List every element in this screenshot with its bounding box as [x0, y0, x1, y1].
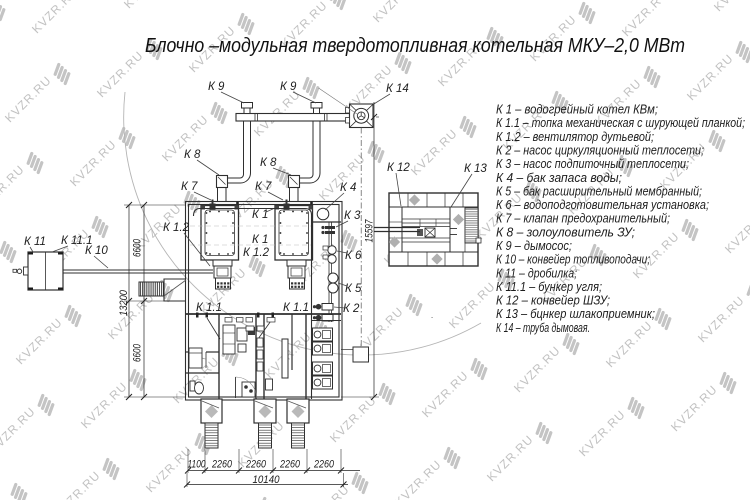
- svg-text:К 10: К 10: [85, 245, 108, 257]
- svg-text:К 13: К 13: [464, 163, 487, 175]
- svg-text:К 1.2: К 1.2: [243, 247, 270, 259]
- svg-text:К 1.1: К 1.1: [283, 302, 309, 314]
- svg-text:10140: 10140: [253, 474, 281, 486]
- svg-text:К 2 – насос циркуляционный те: К 2 – насос циркуляционный теплосети;: [496, 143, 704, 157]
- svg-text:К 8: К 8: [260, 157, 277, 169]
- svg-text:К 9: К 9: [280, 81, 297, 93]
- svg-text:К 11: К 11: [24, 236, 46, 248]
- svg-text:К 5: К 5: [345, 283, 362, 295]
- svg-text:6600: 6600: [132, 343, 144, 362]
- svg-text:К 12: К 12: [387, 162, 410, 174]
- svg-text:К 10 – конвейер топливоподачи: К 10 – конвейер топливоподачи;: [496, 253, 650, 267]
- svg-text:К 1: К 1: [252, 234, 268, 246]
- svg-text:К 6: К 6: [345, 250, 362, 262]
- svg-text:6600: 6600: [132, 238, 144, 257]
- svg-text:К 4 – бак запаса воды;: К 4 – бак запаса воды;: [496, 171, 622, 185]
- svg-text:К 12 – конвейер ШЗУ;: К 12 – конвейер ШЗУ;: [496, 294, 610, 308]
- svg-text:1100: 1100: [188, 459, 207, 471]
- svg-text:К 9 – дымосос;: К 9 – дымосос;: [496, 239, 572, 253]
- svg-text:К 7: К 7: [181, 181, 198, 193]
- svg-text:К 1.1: К 1.1: [196, 302, 222, 314]
- svg-text:2260: 2260: [279, 459, 301, 471]
- svg-text:13200: 13200: [118, 289, 130, 316]
- svg-text:2260: 2260: [245, 459, 267, 471]
- svg-text:К 1: К 1: [252, 209, 268, 221]
- svg-text:К 8: К 8: [184, 149, 201, 161]
- svg-text:К 1.2: К 1.2: [163, 222, 190, 234]
- svg-text:К 3: К 3: [344, 210, 361, 222]
- svg-text:К 1.2 – вентилятор дутьевой;: К 1.2 – вентилятор дутьевой;: [496, 130, 654, 144]
- svg-text:К 3 – насос подпиточный тепло: К 3 – насос подпиточный теплосети;: [496, 157, 689, 171]
- svg-text:15597: 15597: [364, 219, 376, 243]
- svg-text:2260: 2260: [313, 459, 335, 471]
- svg-text:К 1 – водогрейный котел КВм;: К 1 – водогрейный котел КВм;: [496, 103, 658, 117]
- svg-text:К 7 – клапан предохранительны: К 7 – клапан предохранительный;: [496, 212, 670, 226]
- svg-text:2260: 2260: [211, 459, 233, 471]
- svg-text:Блочно –модульная твердотоплив: Блочно –модульная твердотопливная котель…: [145, 34, 685, 57]
- svg-text:К 1.1 – топка механическая с: К 1.1 – топка механическая с шурующей пл…: [496, 116, 745, 130]
- svg-text:К 6 – водоподготовительная ус: К 6 – водоподготовительная установка;: [496, 198, 709, 212]
- svg-text:К 9: К 9: [208, 81, 225, 93]
- svg-text:К 11.1 – бункер угля;: К 11.1 – бункер угля;: [496, 280, 602, 294]
- svg-text:К 4: К 4: [340, 182, 356, 194]
- svg-text:К 14 – труба дымовая.: К 14 – труба дымовая.: [496, 321, 590, 335]
- svg-text:К 11 – дробилка;: К 11 – дробилка;: [496, 266, 577, 280]
- svg-text:К 8 – золоуловитель ЗУ;: К 8 – золоуловитель ЗУ;: [496, 225, 636, 239]
- svg-text:К 13 – бцнкер шлакоприемник;: К 13 – бцнкер шлакоприемник;: [496, 307, 655, 321]
- svg-text:К 5 – бак расширительный мемб: К 5 – бак расширительный мембранный;: [496, 184, 702, 198]
- svg-text:К 14: К 14: [386, 83, 409, 95]
- svg-text:К 2: К 2: [343, 303, 360, 315]
- svg-text:К 7: К 7: [255, 181, 272, 193]
